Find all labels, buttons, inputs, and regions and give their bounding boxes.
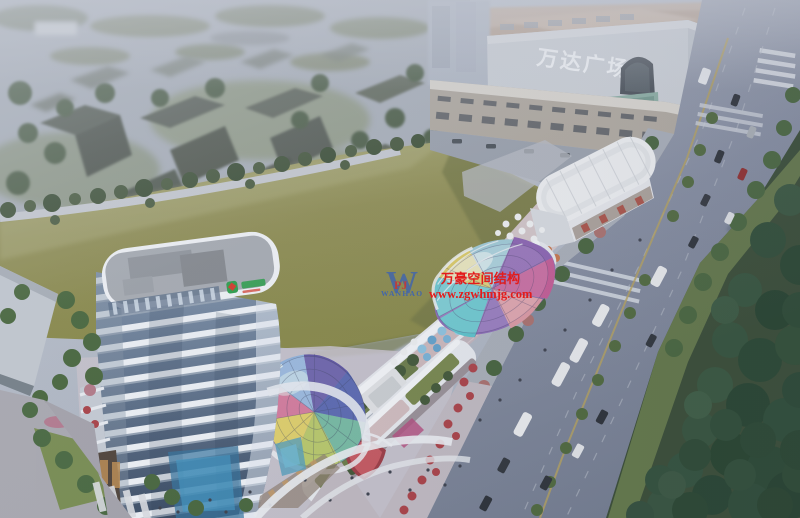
svg-text:万豪空间结构: 万豪空间结构 [440, 271, 520, 286]
svg-text:WANHAO: WANHAO [381, 289, 423, 298]
svg-text:www.zgwhmjg.com: www.zgwhmjg.com [429, 287, 533, 301]
